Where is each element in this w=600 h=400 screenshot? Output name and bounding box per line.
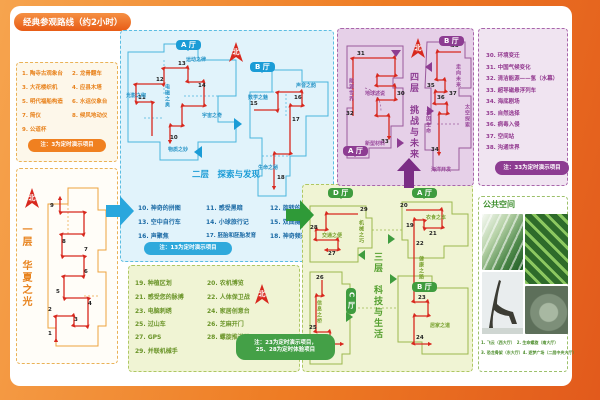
hall-bubble-b: B 厅 [412,282,437,292]
list-item: 29. 并联机械手 [135,349,178,355]
floor1-title: 一层 华夏之光 [20,224,30,308]
list-item: 23. 电脑刺绣 [135,309,172,315]
hall-bubble-d: D 厅 [328,188,353,198]
route-stop: 21 [429,232,437,238]
route-direction-down-icon [391,50,401,57]
route-stop: 35 [427,84,435,90]
area-label: 太空探索 [464,104,469,128]
list-item: 34. 海底剧场 [486,100,520,106]
route-stop: 23 [418,296,426,302]
arrow-floor2-to-floor3-icon [286,200,314,234]
list-item: 22. 人体保卫战 [207,295,250,301]
svg-text:北: 北 [415,43,422,52]
route-stop: 3 [74,318,78,324]
route-stop: 4 [88,302,92,308]
north-compass-icon: 北 [410,38,426,60]
list-item: 30. 环境变迁 [486,54,520,60]
svg-text:北: 北 [29,193,36,202]
route-stop: 27 [328,252,336,258]
list-item: 9. 公道杯 [22,128,46,134]
route-direction-right-icon [346,312,353,322]
note-line: 25、28为定时体验项目 [256,347,315,354]
list-item: 25. 过山车 [135,322,166,328]
area-label: 海洋开发 [431,168,451,173]
list-item: 11. 感受黑暗 [206,206,243,212]
floor4-title: 四层 挑战与未来 [408,72,417,160]
area-label: 信息之桥 [316,300,321,324]
route-direction-right-icon [234,118,242,130]
route-direction-right-icon [390,274,397,284]
area-label: 居家之道 [430,324,450,329]
list-item: 37. 空间站 [486,135,514,141]
hall-bubble-a: A 厅 [343,146,368,156]
photo-dream-plaza-mural [525,286,568,334]
area-label: 数学之魅 [248,96,268,101]
list-item: 24. 家居创意台 [207,309,250,315]
list-item: 17. 胚胎和胚胎发育 [206,234,256,240]
floor2-title: 二层 探索与发现 [192,171,260,180]
area-label: 机械之巧 [358,220,363,244]
area-label: 光影之绚 [126,94,146,99]
floor2-note-pill: 注：13为定时演示项目 [144,242,232,255]
public-space-caption: 1. 飞云（西大厅） 2. 生命螺旋（南大厅） [481,341,558,345]
arrow-floor1-to-floor2-icon [106,196,134,230]
list-item: 16. 声聚焦 [138,234,169,240]
public-space-title: 公共空间 [483,201,515,209]
route-direction-right-icon [427,106,434,116]
list-item: 31. 中国气候变化 [486,66,531,72]
route-stop: 30 [397,92,405,98]
photo-dinosaur-skeleton [482,272,523,334]
route-stop: 37 [449,92,457,98]
route-stop: 5 [56,290,60,296]
route-direction-left-icon [425,62,432,72]
list-item: 26. 芝麻开门 [207,322,244,328]
north-compass-icon: 北 [228,42,244,64]
area-label: 交通之便 [322,234,342,239]
route-stop: 32 [346,112,354,118]
route-direction-right-icon [388,234,395,244]
floor1-note-pill: 注：3为定时演示项目 [28,139,106,152]
list-item: 14. 小球旅行记 [206,220,249,226]
area-label: 健康之路 [418,256,423,280]
route-stop: 15 [250,102,258,108]
route-stop: 29 [360,208,368,214]
photo-dna-spiral-tower [525,214,568,284]
route-stop: 22 [416,242,424,248]
area-label: 生命之秘 [258,166,278,171]
route-direction-right-icon [397,138,404,148]
floor1-map: 1 2 3 4 5 6 7 8 9 [40,176,114,358]
north-compass-icon: 北 [254,284,270,306]
route-stop: 18 [277,176,285,182]
tour-route-poster: 经典参观路线（约2小时） 1. 陶寺古观象台 2. 龙骨翻车 3. 大花楼织机 … [0,0,600,400]
area-label: 运动之律 [186,58,206,63]
poster-title-banner: 经典参观路线（约2小时） [14,13,131,31]
north-compass-icon: 北 [24,188,40,210]
photo-flying-cloud [482,214,523,270]
list-item: 6. 水运仪象台 [72,100,107,106]
list-item: 21. 感受您的脉搏 [135,295,184,301]
list-item: 36. 病毒入侵 [486,123,520,129]
hall-bubble-c: C 厅 [346,288,356,314]
route-direction-left-icon [194,146,202,158]
route-stop: 6 [84,270,88,276]
list-item: 1. 陶寺古观象台 [22,72,63,78]
hall-bubble-b: B 厅 [250,62,275,72]
list-item: 20. 农机博览 [207,281,244,287]
note-line: 注：23为定时演示项目， [254,340,317,347]
list-item: 3. 大花楼织机 [22,86,57,92]
route-stop: 9 [50,204,54,210]
floor4-note-pill: 注：33为定时演示项目 [495,161,569,175]
route-stop: 26 [316,276,324,282]
route-stop: 25 [309,326,317,332]
route-stop: 20 [400,204,408,210]
list-item: 38. 沟通世界 [486,146,520,152]
area-label: 衣食之本 [426,216,446,221]
public-space-caption: 3. 恐龙骨架（东大厅）4. 逐梦广场（二层中央大厅） [481,351,576,355]
route-stop: 31 [357,52,365,58]
list-item: 5. 明代福船构造 [22,100,63,106]
list-item: 35. 自然选择 [486,112,520,118]
area-label: 新型材料 [365,142,385,147]
route-stop: 13 [178,62,186,68]
route-stop: 24 [416,336,424,342]
route-stop: 16 [294,96,302,102]
route-stop: 14 [198,84,206,90]
list-item: 10. 神奇的拼图 [138,206,181,212]
route-direction-left-icon [358,250,365,260]
area-label: 电磁之奥 [164,84,169,108]
hall-bubble-a: A 厅 [176,40,201,50]
route-stop: 7 [84,248,88,254]
area-label: 地球述说 [365,92,385,97]
route-stop: 8 [62,240,66,246]
route-stop: 36 [437,96,445,102]
route-stop: 10 [170,136,178,142]
list-item: 27. GPS [135,335,161,341]
floor3-title: 三层 科技与生活 [372,252,381,340]
area-label: 走向未来 [455,64,460,88]
svg-text:北: 北 [259,289,266,298]
list-item: 32. 清洁能源——氢（水幕） [486,77,558,83]
area-label: 宇宙之奇 [202,114,222,119]
area-label: 声音之韵 [296,84,316,89]
svg-text:北: 北 [233,47,240,56]
route-stop: 2 [48,308,52,314]
area-label: 物质之妙 [168,148,188,153]
floor3-note-pill: 注：23为定时演示项目， 25、28为定时体验项目 [236,334,335,360]
floor2-hall-a-map: 10 11 12 13 14 光影之绚 电磁之奥 运动之律 宇宙之奇 物质之妙 [124,38,240,170]
hall-bubble-b: B 厅 [439,36,464,46]
route-stop: 12 [156,78,164,84]
arrow-floor3-to-floor4-icon [397,158,421,192]
list-item: 33. 超导磁悬浮列车 [486,89,536,95]
route-stop: 1 [48,332,52,338]
area-label: 能源世界 [348,78,353,102]
route-stop: 34 [431,148,439,154]
list-item: 2. 龙骨翻车 [72,72,102,78]
route-stop: 17 [292,118,300,124]
list-item: 4. 应县木塔 [72,86,102,92]
route-stop: 19 [406,224,414,230]
list-item: 13. 空中自行车 [138,220,181,226]
list-item: 8. 候风地动仪 [72,114,107,120]
list-item: 7. 简仪 [22,114,41,120]
list-item: 19. 种植区划 [135,281,172,287]
